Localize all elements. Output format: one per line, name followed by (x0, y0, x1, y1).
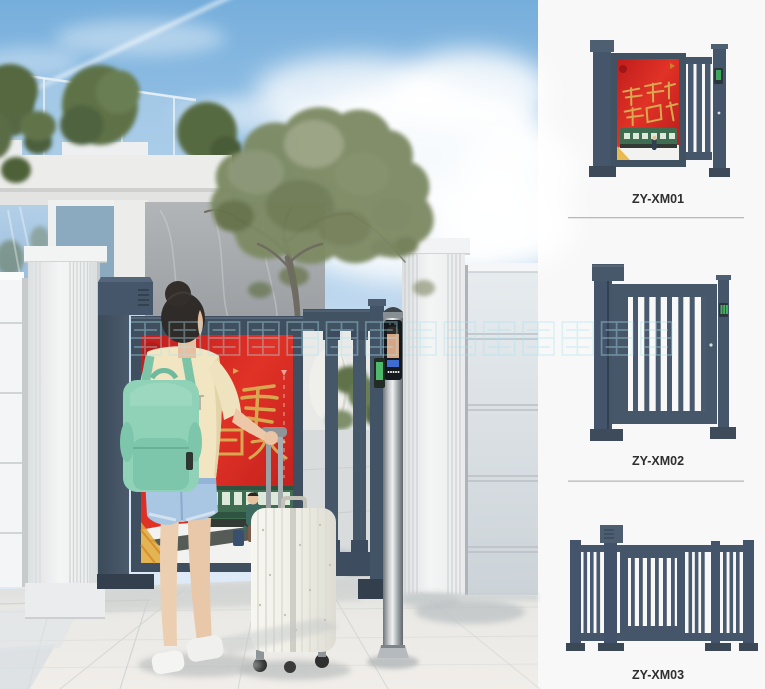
svg-text:ZY-XM01: ZY-XM01 (632, 192, 684, 206)
svg-text:ZY-XM03: ZY-XM03 (632, 668, 684, 682)
svg-text:ZY-XM02: ZY-XM02 (632, 454, 684, 468)
